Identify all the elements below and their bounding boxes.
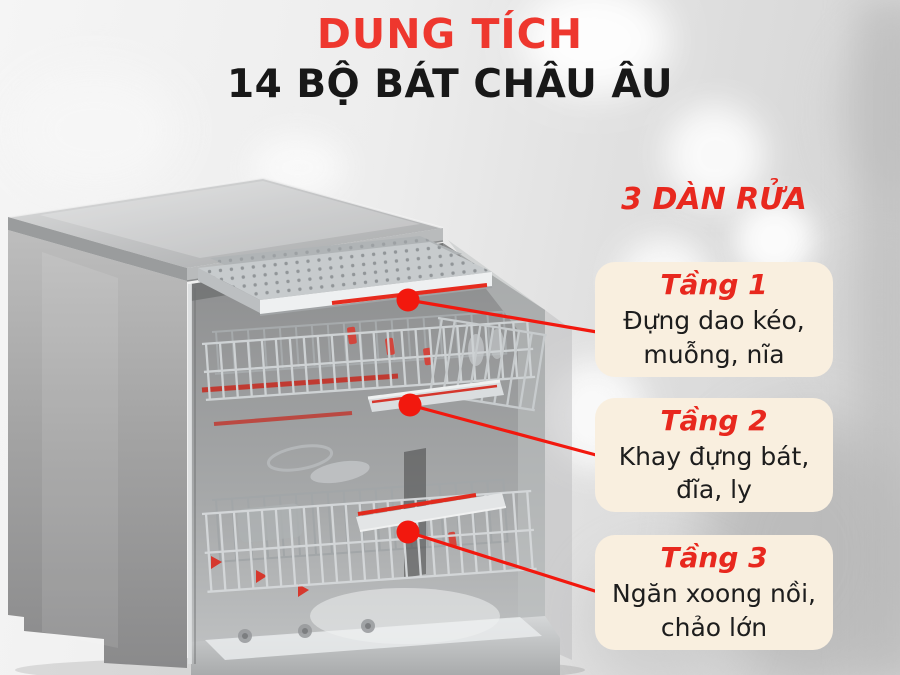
callout-dot-1 <box>397 289 420 312</box>
callout-tier-2-line1: Khay đựng bát, <box>619 441 810 474</box>
callout-tier-2: Tầng 2 Khay đựng bát, đĩa, ly <box>595 398 833 512</box>
callout-tier-3-line2: chảo lớn <box>661 612 767 645</box>
callout-tier-1-title: Tầng 1 <box>660 268 767 301</box>
callout-dot-2 <box>399 394 422 417</box>
callout-dot-3 <box>397 521 420 544</box>
page-title: DUNG TÍCH <box>0 10 900 58</box>
infographic-canvas: DUNG TÍCH 14 BỘ BÁT CHÂU ÂU 3 DÀN RỬA Tầ… <box>0 0 900 675</box>
callout-tier-1: Tầng 1 Đựng dao kéo, muỗng, nĩa <box>595 262 833 377</box>
page-subtitle: 14 BỘ BÁT CHÂU ÂU <box>0 62 900 107</box>
callout-tier-3-title: Tầng 3 <box>660 541 767 574</box>
cabinet-side-panel <box>8 230 187 668</box>
section-label: 3 DÀN RỬA <box>583 182 845 217</box>
callout-tier-2-line2: đĩa, ly <box>676 474 752 507</box>
callout-tier-2-title: Tầng 2 <box>660 404 767 437</box>
callout-tier-3: Tầng 3 Ngăn xoong nồi, chảo lớn <box>595 535 833 650</box>
callout-tier-1-line1: Đựng dao kéo, <box>623 305 805 338</box>
callout-tier-3-line1: Ngăn xoong nồi, <box>612 578 816 611</box>
callout-tier-1-line2: muỗng, nĩa <box>643 339 784 372</box>
